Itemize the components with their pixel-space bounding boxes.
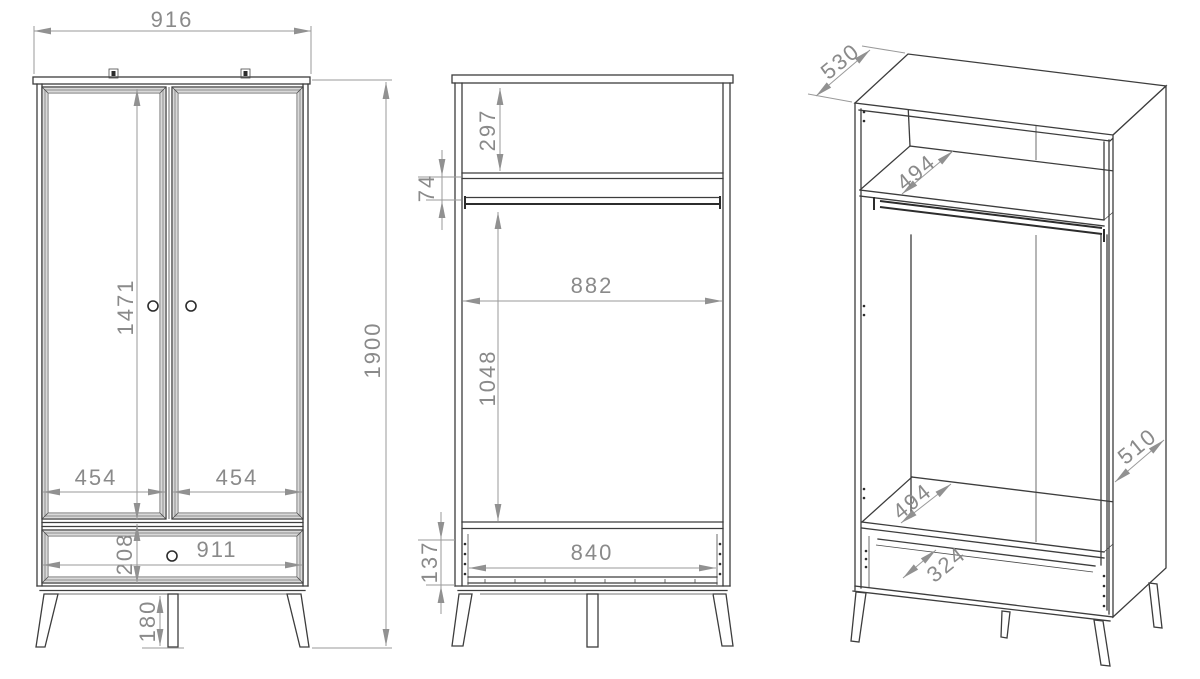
dim-label-454-right: 454 (216, 465, 259, 490)
dim-label-324: 324 (922, 541, 971, 587)
front-view: 916 1900 1471 208 454 454 911 180 (33, 7, 392, 648)
dim-label-137: 137 (417, 541, 442, 584)
isometric-view: 530 494 510 494 324 (808, 38, 1166, 666)
iso-middle-leg (1001, 611, 1010, 638)
right-door-knob (186, 301, 196, 311)
hanging-rail (465, 196, 720, 209)
wardrobe-technical-drawing: 916 1900 1471 208 454 454 911 180 (0, 0, 1200, 679)
section-legs (452, 594, 733, 647)
top-panel (33, 77, 310, 84)
right-door (172, 87, 303, 519)
left-door-knob (148, 301, 158, 311)
dim-label-208: 208 (112, 533, 137, 576)
dim-label-74: 74 (414, 174, 439, 202)
dim-label-494-lower: 494 (888, 478, 937, 524)
iso-front-left-leg (851, 592, 866, 642)
iso-back-right-leg (1149, 583, 1162, 628)
bottom-front-edge-2 (853, 591, 1110, 621)
dim-label-840: 840 (571, 540, 614, 565)
drawer-knob (167, 551, 177, 561)
dim-label-1471: 1471 (113, 279, 138, 336)
dim-label-454-left: 454 (75, 465, 118, 490)
front-left-leg (36, 594, 58, 647)
top-face (855, 54, 1166, 135)
front-legs (36, 594, 309, 647)
dim-label-1900: 1900 (360, 322, 385, 379)
bottom-front-edge (855, 586, 1113, 617)
dim-label-180: 180 (135, 600, 160, 643)
dim-label-297: 297 (475, 109, 500, 152)
section-top-panel (452, 75, 733, 83)
section-center-leg (587, 594, 598, 647)
hanging-rail-iso (874, 197, 1104, 242)
dim-label-1048: 1048 (475, 350, 500, 407)
front-center-leg (168, 594, 178, 647)
left-door (42, 87, 166, 519)
drawing-canvas: 916 1900 1471 208 454 454 911 180 (0, 0, 1200, 679)
right-side-face (1113, 86, 1166, 617)
section-dimensions: 297 74 882 1048 840 137 (414, 88, 722, 614)
section-left-leg (452, 594, 472, 646)
iso-exterior (853, 54, 1166, 621)
dim-label-530: 530 (816, 38, 865, 84)
iso-front-right-leg (1094, 620, 1110, 666)
dim-label-916: 916 (151, 7, 194, 32)
dim-label-911: 911 (196, 537, 237, 562)
left-door-outer (42, 87, 166, 519)
front-drawer (42, 530, 303, 583)
section-view: 297 74 882 1048 840 137 (414, 75, 733, 647)
dim-label-882: 882 (571, 273, 614, 298)
front-right-leg (287, 594, 309, 647)
section-right-leg (713, 594, 733, 646)
section-carcass (452, 75, 733, 594)
